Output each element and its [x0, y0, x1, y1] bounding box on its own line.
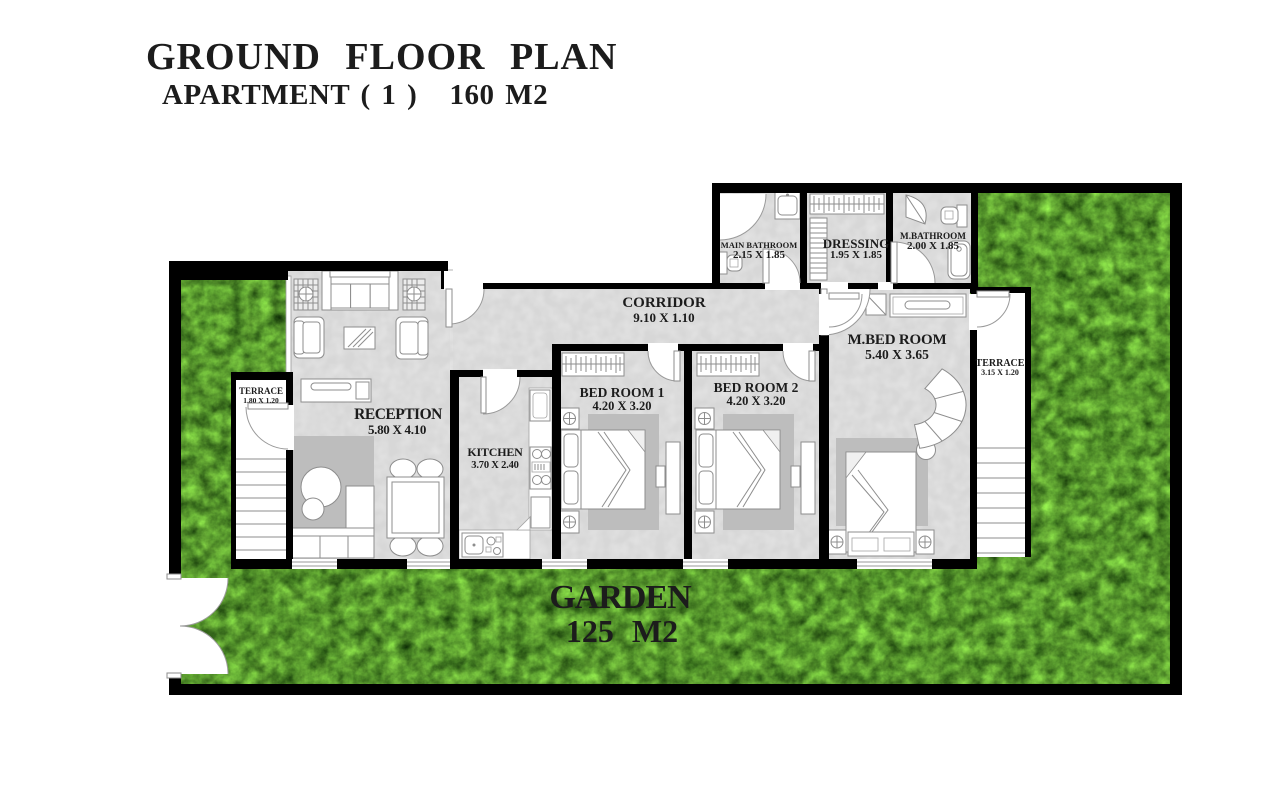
- svg-text:M.BED ROOM: M.BED ROOM: [848, 332, 947, 348]
- svg-text:CORRIDOR: CORRIDOR: [622, 295, 706, 311]
- svg-text:2.15 X 1.85: 2.15 X 1.85: [733, 249, 785, 261]
- svg-text:1.80 X 1.20: 1.80 X 1.20: [243, 396, 279, 405]
- svg-text:5.80 X 4.10: 5.80 X 4.10: [368, 422, 426, 437]
- svg-text:TERRACE: TERRACE: [239, 386, 283, 396]
- svg-text:BED ROOM 2: BED ROOM 2: [714, 380, 799, 395]
- svg-text:KITCHEN: KITCHEN: [467, 445, 523, 459]
- svg-text:125 M2: 125 M2: [566, 613, 678, 649]
- svg-text:9.10 X 1.10: 9.10 X 1.10: [633, 310, 694, 325]
- svg-text:1.95 X 1.85: 1.95 X 1.85: [830, 249, 882, 261]
- svg-text:APARTMENT ( 1 ) 160 M2: APARTMENT ( 1 ) 160 M2: [162, 79, 548, 111]
- svg-text:3.70 X 2.40: 3.70 X 2.40: [471, 460, 518, 471]
- svg-text:4.20 X 3.20: 4.20 X 3.20: [592, 399, 651, 413]
- svg-text:3.15 X 1.20: 3.15 X 1.20: [981, 368, 1019, 377]
- svg-text:GROUND FLOOR PLAN: GROUND FLOOR PLAN: [146, 36, 617, 78]
- svg-text:RECEPTION: RECEPTION: [354, 406, 442, 423]
- svg-text:BED ROOM 1: BED ROOM 1: [580, 385, 665, 400]
- svg-text:4.20 X 3.20: 4.20 X 3.20: [726, 394, 785, 408]
- svg-text:GARDEN: GARDEN: [549, 579, 692, 616]
- svg-text:5.40 X 3.65: 5.40 X 3.65: [865, 347, 929, 362]
- svg-text:2.00 X 1.85: 2.00 X 1.85: [907, 240, 959, 252]
